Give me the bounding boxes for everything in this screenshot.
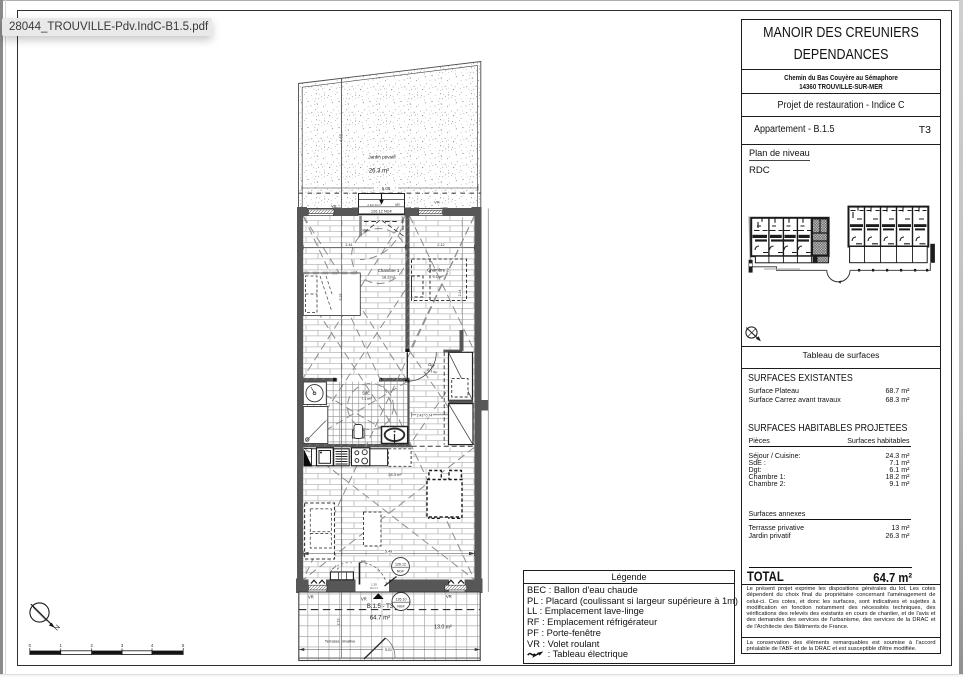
svg-text:5.35: 5.35 — [339, 294, 343, 301]
svg-text:3: 3 — [121, 643, 124, 648]
svg-text:64.7 m²: 64.7 m² — [370, 615, 390, 621]
svg-text:NGF: NGF — [397, 605, 405, 609]
svg-text:0.74: 0.74 — [426, 413, 433, 417]
svg-text:7.1 m²: 7.1 m² — [361, 397, 372, 401]
svg-text:26.3 m²: 26.3 m² — [369, 169, 389, 175]
svg-text:VR: VR — [308, 595, 314, 600]
svg-text:18.2 m²: 18.2 m² — [382, 275, 396, 280]
svg-text:B.1.5 - T3: B.1.5 - T3 — [367, 604, 394, 610]
svg-text:Jardin privatif: Jardin privatif — [368, 155, 396, 160]
svg-text:Chambre 2: Chambre 2 — [427, 268, 449, 273]
svg-text:N: N — [53, 624, 62, 632]
svg-text:126.12 NGF: 126.12 NGF — [371, 209, 393, 214]
svg-text:Terrasse privative: Terrasse privative — [325, 639, 356, 644]
svg-text:5.01: 5.01 — [385, 648, 392, 652]
svg-text:RF: RF — [363, 228, 369, 232]
svg-text:0: 0 — [29, 643, 32, 648]
svg-text:Chambre 1: Chambre 1 — [378, 268, 400, 273]
svg-text:SdE: SdE — [362, 391, 370, 396]
svg-text:4: 4 — [151, 643, 154, 648]
svg-text:VR: VR — [446, 594, 452, 599]
svg-text:2.41: 2.41 — [345, 243, 352, 247]
svg-text:13.0 m²: 13.0 m² — [434, 624, 452, 630]
svg-text:126.12: 126.12 — [395, 563, 406, 567]
svg-text:126.10: 126.10 — [396, 598, 407, 602]
svg-text:A Ext.01.N: A Ext.01.N — [367, 203, 380, 207]
svg-text:5.49: 5.49 — [385, 549, 392, 553]
svg-text:VR: VR — [361, 597, 367, 602]
svg-text:VR: VR — [395, 203, 400, 207]
svg-text:Mezz 9: Mezz 9 — [370, 587, 379, 590]
svg-text:2.23: 2.23 — [336, 619, 340, 626]
svg-text:5.00: 5.00 — [382, 186, 391, 191]
svg-text:1.35: 1.35 — [371, 583, 377, 587]
svg-text:2: 2 — [91, 643, 94, 648]
svg-text:5: 5 — [182, 643, 185, 648]
svg-text:24.3 m²: 24.3 m² — [388, 472, 402, 477]
svg-text:2.24: 2.24 — [458, 290, 462, 297]
svg-text:1.43: 1.43 — [417, 413, 424, 417]
svg-text:NGF: NGF — [397, 570, 405, 574]
svg-text:9.1 m²: 9.1 m² — [432, 274, 444, 279]
svg-text:VR: VR — [434, 200, 440, 205]
svg-text:2.12: 2.12 — [437, 243, 444, 247]
svg-text:1: 1 — [60, 643, 63, 648]
